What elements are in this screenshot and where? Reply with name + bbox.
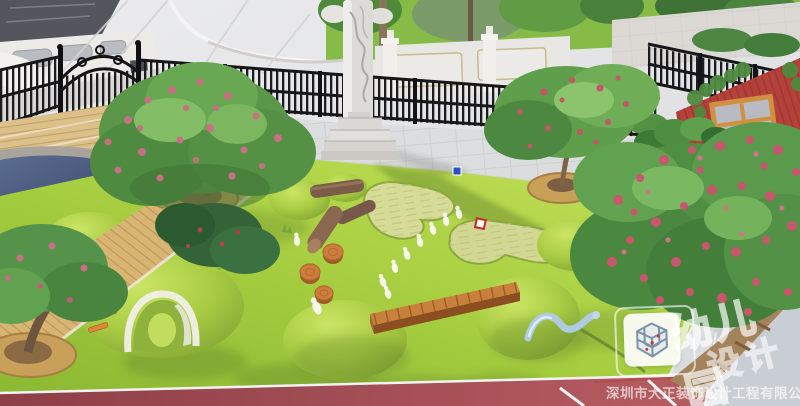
blue-sign-marker xyxy=(453,167,461,175)
red-flag-marker xyxy=(475,218,486,229)
playground-rendering: 幼儿园 设计 深圳市大正装饰设计工程有限公司 xyxy=(0,0,800,406)
scene-illustration xyxy=(0,0,800,406)
